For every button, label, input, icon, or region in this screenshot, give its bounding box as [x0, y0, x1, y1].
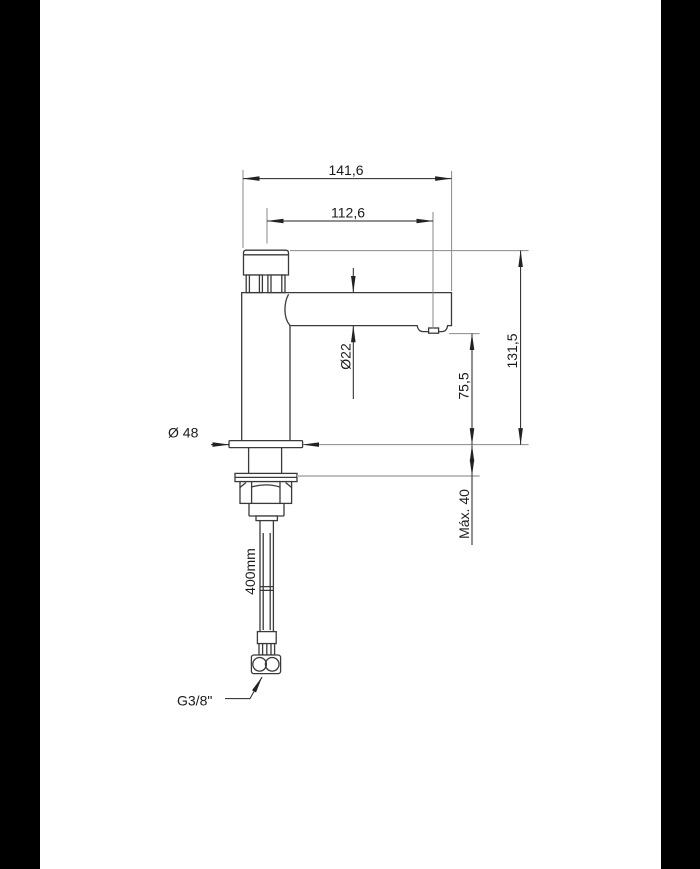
aerator-notch — [429, 328, 439, 333]
dimension-label-total-height: 131,5 — [504, 333, 520, 368]
annotation-hose-length: 400mm — [242, 548, 258, 595]
mounting-nut — [240, 482, 292, 504]
drawing-canvas: 141,6 112,6 131,5 75,5 Ø22 Ø 48 Máx. 40 … — [0, 0, 700, 869]
dimension-label-spout-reach: 112,6 — [331, 205, 365, 221]
hose-connector-nut — [251, 655, 280, 674]
label-hose-length: 400mm — [242, 548, 258, 595]
handle-cap — [244, 250, 289, 275]
document-page — [40, 0, 661, 869]
screenshot-stage: 141,6 112,6 131,5 75,5 Ø22 Ø 48 Máx. 40 … — [0, 0, 700, 869]
dimension-label-outlet-height: 75,5 — [456, 372, 472, 399]
dimension-label-spout-diameter: Ø22 — [338, 343, 354, 370]
dimension-label-total-width: 141,6 — [328, 162, 363, 178]
base-flange — [229, 441, 303, 448]
label-thread-size: G3/8" — [177, 693, 212, 709]
hose-ferrule — [257, 632, 276, 644]
dimension-label-max-deck-thickness: Máx. 40 — [456, 489, 472, 539]
hose-collar — [256, 516, 277, 521]
dimension-label-base-diameter: Ø 48 — [168, 425, 199, 441]
